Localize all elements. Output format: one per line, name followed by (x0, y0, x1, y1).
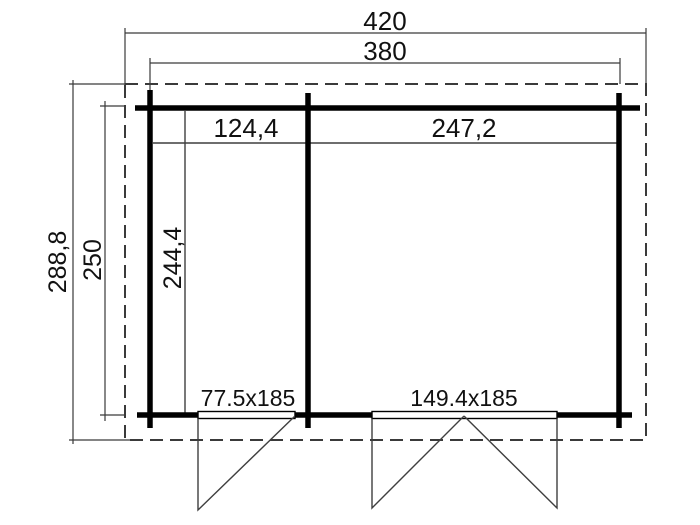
overall-depth-label: 288,8 (44, 231, 72, 294)
dimension-lines-group (69, 28, 646, 444)
wall-width-label: 380 (363, 36, 406, 66)
single-door-swing (198, 416, 295, 510)
walls-group (135, 90, 640, 428)
interior-lines-group (153, 111, 617, 413)
double-door-left-leaf-swing (372, 416, 464, 508)
double-door-right-leaf-swing (464, 416, 557, 508)
floor-plan-drawing: 420 380 124,4 247,2 288,8 250 244,4 77.5… (0, 0, 700, 525)
wall-depth-label: 250 (79, 239, 107, 281)
overall-width-label: 420 (363, 6, 406, 36)
labels-group: 420 380 124,4 247,2 288,8 250 244,4 77.5… (44, 6, 518, 411)
right-room-width-label: 247,2 (431, 113, 496, 143)
single-door-threshold (198, 412, 295, 419)
left-room-width-label: 124,4 (213, 113, 278, 143)
floor-plan-svg: 420 380 124,4 247,2 288,8 250 244,4 77.5… (0, 0, 700, 525)
interior-depth-label: 244,4 (159, 227, 187, 290)
double-door-size-label: 149.4x185 (410, 385, 517, 411)
single-door-size-label: 77.5x185 (201, 385, 296, 411)
door-swings-group (198, 416, 557, 510)
door-thresholds-group (198, 412, 557, 419)
